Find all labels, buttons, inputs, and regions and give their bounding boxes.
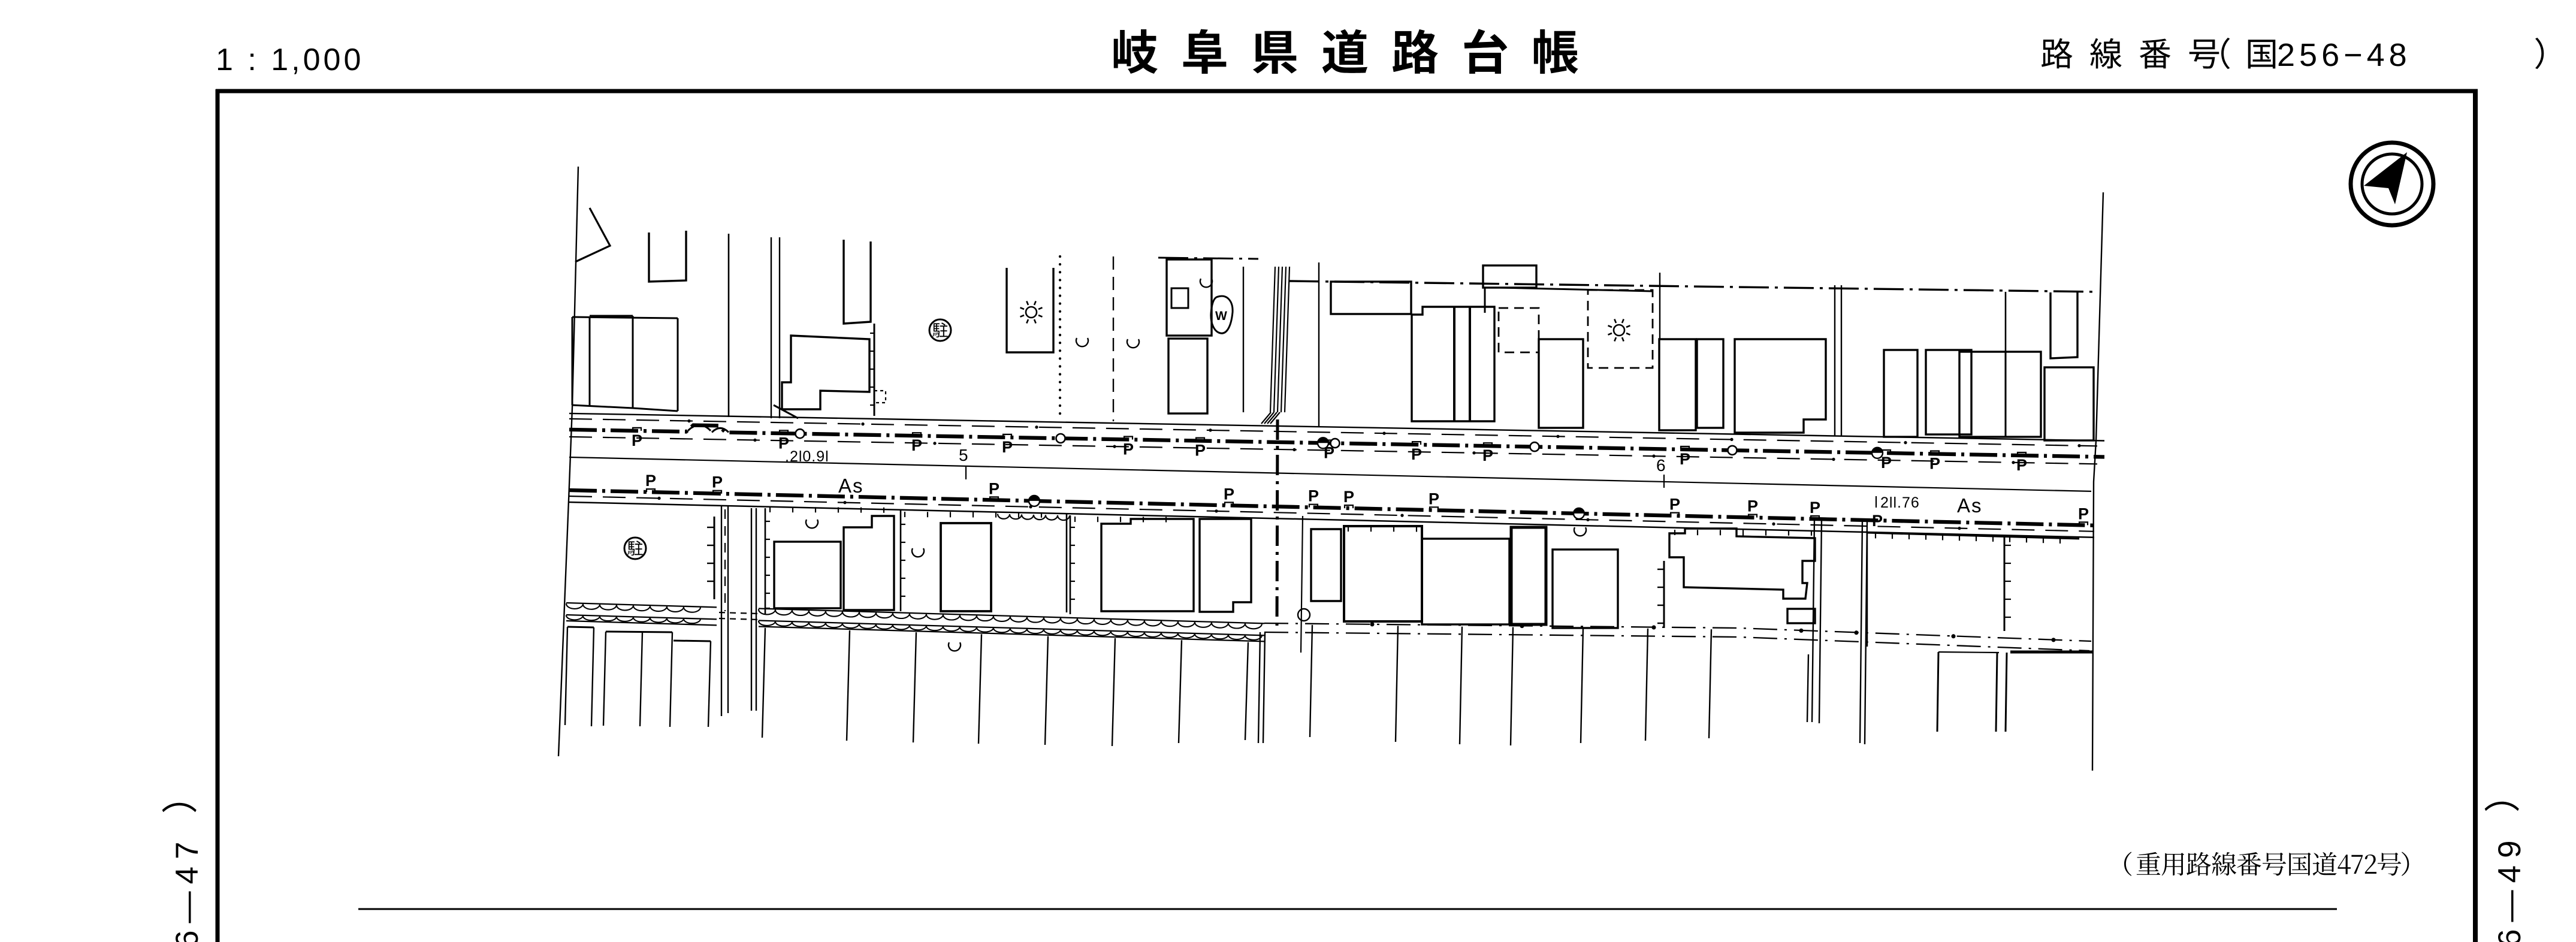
svg-text:256−48: 256−48 (2277, 37, 2411, 73)
svg-text:P: P (989, 479, 999, 497)
svg-text:P: P (1929, 455, 1940, 473)
svg-text:2ll.76: 2ll.76 (1880, 494, 1920, 511)
svg-text:P: P (1308, 487, 1319, 505)
svg-text:P: P (645, 472, 656, 490)
svg-text:1 : 1,000: 1 : 1,000 (216, 43, 364, 77)
svg-text:As: As (1957, 494, 1983, 517)
svg-text:.2l0.9l: .2l0.9l (785, 448, 829, 465)
svg-text:P: P (1482, 446, 1493, 464)
svg-text:P: P (1411, 445, 1422, 463)
svg-text:6—49: 6—49 (2492, 834, 2527, 942)
svg-text:P: P (1680, 450, 1690, 468)
svg-text:5: 5 (959, 446, 968, 464)
svg-text:P: P (1810, 499, 1820, 517)
svg-text:P: P (1123, 440, 1134, 458)
svg-text:P: P (1224, 485, 1234, 503)
svg-text:P: P (1872, 512, 1883, 530)
svg-text:P: P (2016, 456, 2027, 474)
svg-text:P: P (1343, 488, 1354, 506)
svg-text:P: P (632, 431, 642, 449)
svg-text:P: P (1881, 454, 1892, 472)
svg-text:As: As (838, 475, 864, 497)
svg-text:P: P (1195, 442, 1206, 460)
svg-text:6: 6 (1656, 456, 1666, 475)
svg-text:P: P (2078, 505, 2089, 523)
svg-text:W: W (1215, 309, 1227, 323)
svg-text:P: P (911, 436, 922, 454)
svg-text:P: P (712, 473, 723, 491)
svg-text:P: P (1747, 497, 1758, 515)
svg-text:P: P (1002, 438, 1013, 456)
svg-text:P: P (1669, 496, 1680, 514)
svg-text:P: P (1429, 490, 1439, 508)
svg-text:6—47: 6—47 (170, 835, 205, 942)
